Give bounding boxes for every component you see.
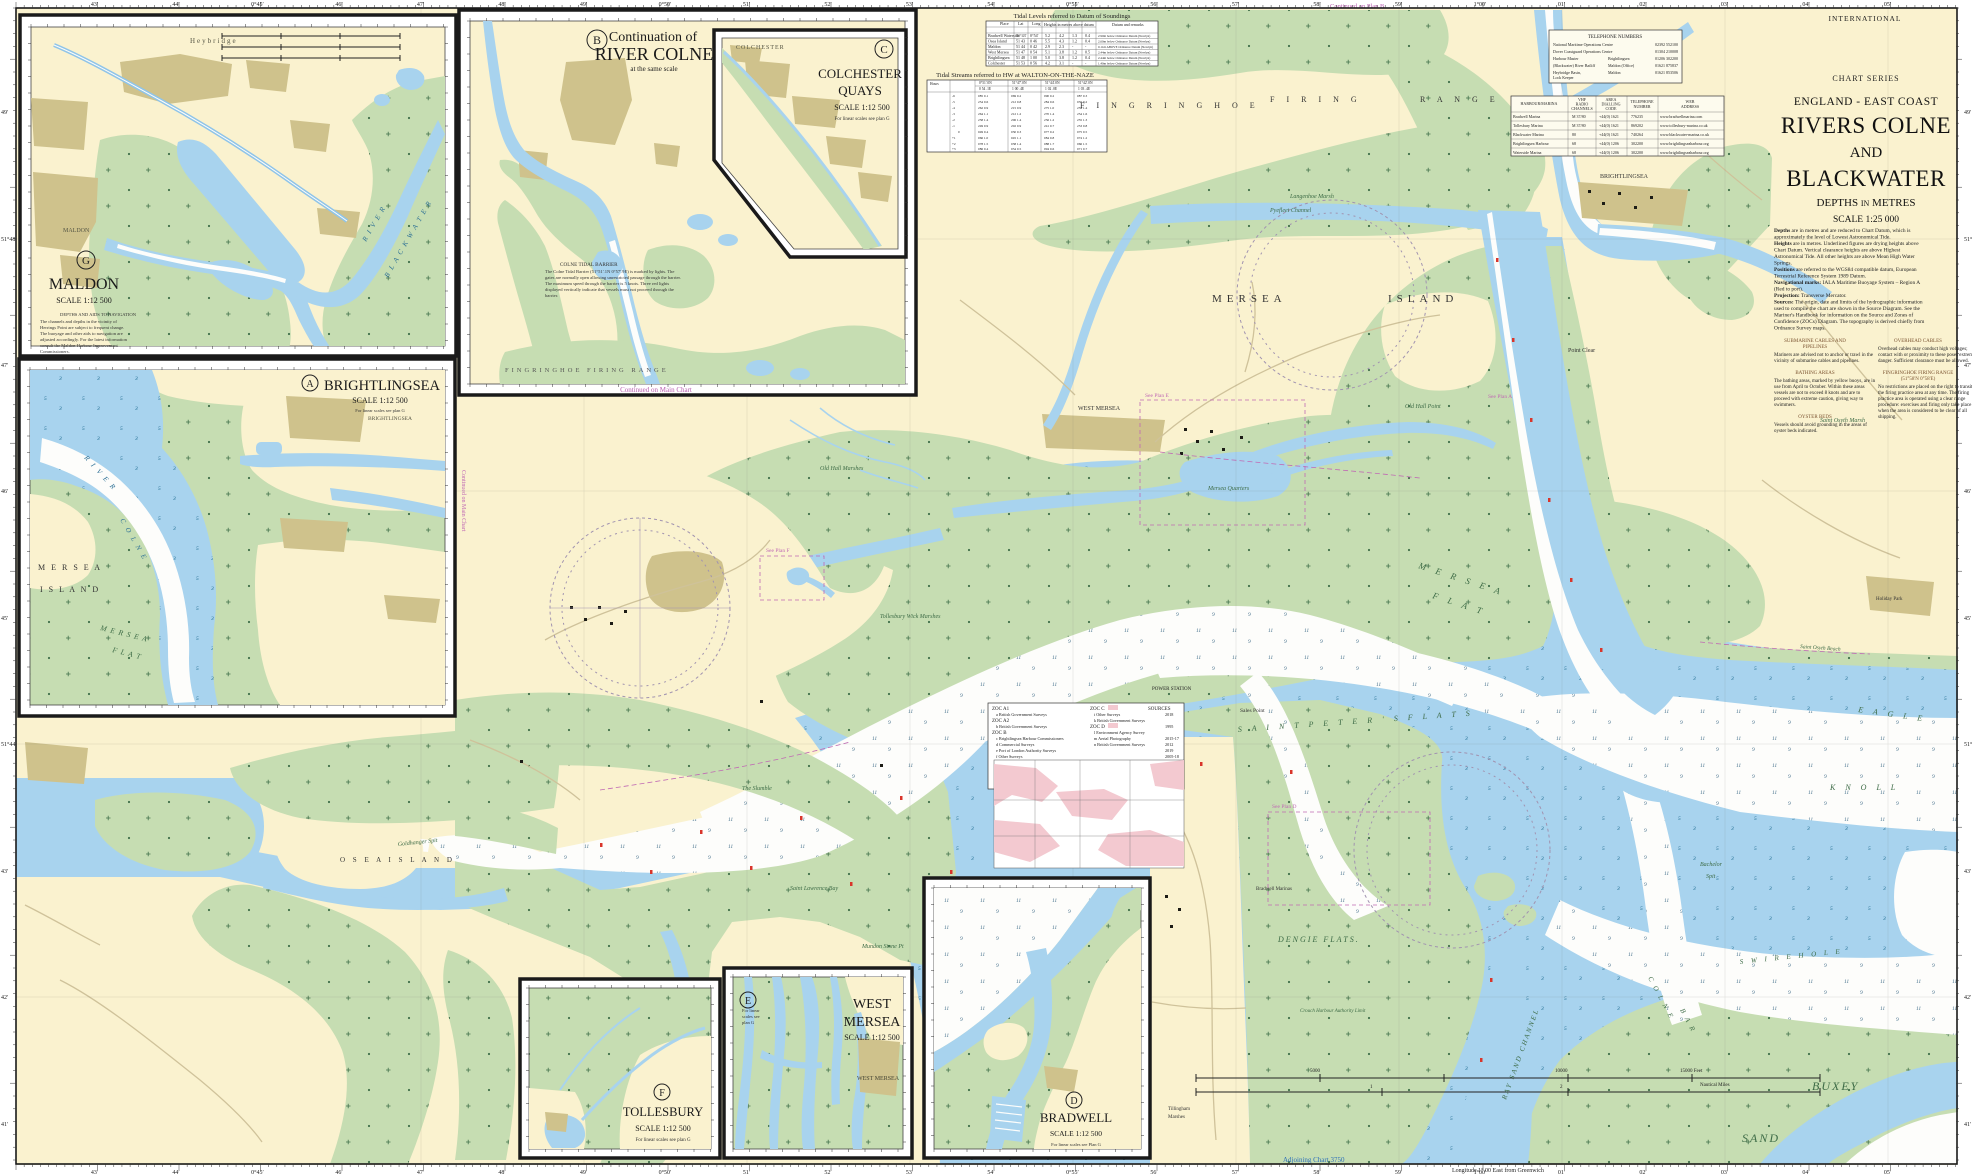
svg-text:212 1.2: 212 1.2 <box>1011 112 1021 116</box>
svg-text:use from April to October. Wit: use from April to October. Within these … <box>1774 385 1865 390</box>
svg-text:2.44m below Ordnance Datum (Ne: 2.44m below Ordnance Datum (Newlyn) <box>1098 56 1150 60</box>
svg-text:+44(0) 1206: +44(0) 1206 <box>1599 150 1619 155</box>
svg-text:270 1.4: 270 1.4 <box>1044 112 1054 116</box>
svg-text:59′: 59′ <box>1395 1170 1403 1175</box>
svg-text:a British Government Surveys: a British Government Surveys <box>996 712 1047 717</box>
svg-text:Longitude 1°.00 East from Gr: Longitude 1°.00 East from Greenwich <box>1452 1167 1544 1174</box>
svg-text:Colchester: Colchester <box>988 61 1006 66</box>
svg-text:51°48′: 51°48′ <box>1 236 17 243</box>
svg-text:53′: 53′ <box>906 2 914 8</box>
svg-text:43′: 43′ <box>1 869 9 875</box>
svg-text:swimmers.: swimmers. <box>1774 403 1796 408</box>
svg-text:0°55′: 0°55′ <box>1066 1169 1079 1175</box>
svg-text:Depths are in metres and are r: Depths are in metres and are reduced to … <box>1774 228 1911 234</box>
svg-text:Chart Datum. Vertical clearanc: Chart Datum. Vertical clearance heights … <box>1774 248 1901 254</box>
svg-text:www.blackwater-marina.co.uk: www.blackwater-marina.co.uk <box>1660 132 1709 137</box>
svg-text:0 56: 0 56 <box>1030 61 1037 66</box>
svg-text:TELEPHONE NUMBERS: TELEPHONE NUMBERS <box>1588 35 1643 40</box>
svg-text:215 0.9: 215 0.9 <box>1011 106 1021 110</box>
svg-text:256 1.2: 256 1.2 <box>1044 118 1054 122</box>
svg-text:INTERNATIONAL: INTERNATIONAL <box>1829 14 1902 23</box>
svg-text:869202: 869202 <box>1631 123 1643 128</box>
svg-text:Navigational marks: IALA Marit: Navigational marks: IALA Maritime Buoyag… <box>1774 280 1920 286</box>
svg-text:3.8: 3.8 <box>1059 50 1064 55</box>
svg-text:Herrings Point are subject to: Herrings Point are subject to frequent c… <box>40 325 124 330</box>
svg-text:WEST: WEST <box>853 997 892 1012</box>
svg-text:+3: +3 <box>952 147 956 151</box>
svg-text:68: 68 <box>1572 150 1576 155</box>
svg-text:vicinity of submarine cables a: vicinity of submarine cables and pipelin… <box>1774 359 1860 364</box>
svg-text:SUBMARINE CABLES AND: SUBMARINE CABLES AND <box>1784 339 1846 344</box>
svg-text:44′: 44′ <box>172 2 180 8</box>
svg-text:Commissioners.: Commissioners. <box>40 349 70 354</box>
svg-text:249 0.9: 249 0.9 <box>978 124 988 128</box>
svg-text:BLACKWATER: BLACKWATER <box>1786 166 1946 191</box>
svg-text:53′: 53′ <box>906 1170 914 1175</box>
svg-text:01′: 01′ <box>1558 2 1566 8</box>
svg-text:Point Clear: Point Clear <box>1568 348 1595 354</box>
svg-text:COLNE TIDAL BARRIER: COLNE TIDAL BARRIER <box>560 262 618 268</box>
svg-text:4.2: 4.2 <box>1045 61 1050 66</box>
svg-text:For linear: For linear <box>742 1008 760 1013</box>
svg-text:54′: 54′ <box>987 2 995 8</box>
svg-text:ENGLAND - EAST COAST: ENGLAND - EAST COAST <box>1794 96 1938 108</box>
svg-text:k British Government Surveys: k British Government Surveys <box>1094 718 1145 723</box>
svg-text:094 0.6: 094 0.6 <box>1044 147 1054 151</box>
svg-text:085 0.1: 085 0.1 <box>978 94 988 98</box>
svg-text:078 1.5: 078 1.5 <box>978 142 988 146</box>
svg-text:when the area is considered to: when the area is considered to be clear … <box>1878 409 1968 414</box>
svg-text:075 0.5: 075 0.5 <box>1077 130 1087 134</box>
svg-text:02′: 02′ <box>1639 1170 1647 1175</box>
svg-text:Harbour Master: Harbour Master <box>1553 56 1579 61</box>
svg-text:51°44′: 51°44′ <box>1964 741 1972 748</box>
svg-text:51 44: 51 44 <box>1016 44 1025 49</box>
svg-text:procedure: exercises and firin: procedure: exercises and firing only tak… <box>1878 403 1972 408</box>
svg-text:E: E <box>745 996 751 1007</box>
svg-text:Brightlingsea Harbour: Brightlingsea Harbour <box>1513 141 1550 146</box>
svg-text:K N O L L: K N O L L <box>1829 783 1899 792</box>
svg-text:01621 875837: 01621 875837 <box>1655 63 1678 68</box>
svg-text:Crouch Harbour Authority Limit: Crouch Harbour Authority Limit <box>1300 1009 1366 1014</box>
svg-text:BATHING AREAS: BATHING AREAS <box>1795 371 1835 376</box>
svg-text:51°48′: 51°48′ <box>1964 236 1972 243</box>
svg-text:066 1.5: 066 1.5 <box>1077 142 1087 146</box>
svg-text:04′: 04′ <box>1802 1170 1810 1175</box>
svg-text:shipping.: shipping. <box>1878 415 1896 420</box>
svg-text:1 02 .0E: 1 02 .0E <box>1045 87 1058 91</box>
svg-text:See Plan D: See Plan D <box>1272 804 1296 810</box>
svg-text:1.2: 1.2 <box>1072 55 1077 60</box>
svg-text:Sources: The origin, date and: Sources: The origin, date and limits of … <box>1774 299 1923 306</box>
svg-text:CODE: CODE <box>1606 106 1617 111</box>
svg-text:n British Government Surveys: n British Government Surveys <box>1094 742 1145 747</box>
svg-text:-4: -4 <box>952 106 955 110</box>
svg-text:58′: 58′ <box>1313 1170 1321 1175</box>
svg-text:2012: 2012 <box>1165 742 1173 747</box>
svg-text:47′: 47′ <box>1 363 9 369</box>
svg-text:0°50′: 0°50′ <box>659 1169 672 1175</box>
svg-text:740264: 740264 <box>1631 132 1643 137</box>
svg-text:Sales Point: Sales Point <box>1240 708 1265 714</box>
svg-text:Dover Coastguard Operations Ce: Dover Coastguard Operations Centre <box>1553 49 1613 54</box>
svg-text:SAND: SAND <box>1742 1131 1780 1145</box>
svg-text:PIPELINES: PIPELINES <box>1803 345 1828 350</box>
svg-text:05′: 05′ <box>1884 2 1892 8</box>
svg-text:FINGRINGHOE FIRING RANGE: FINGRINGHOE FIRING RANGE <box>505 367 669 374</box>
svg-text:2015-17: 2015-17 <box>1165 736 1179 741</box>
svg-text:(51°58'N 0°58'E): (51°58'N 0°58'E) <box>1901 377 1936 382</box>
svg-text:1.3: 1.3 <box>1072 33 1077 38</box>
svg-text:Mersea Quarters: Mersea Quarters <box>1207 486 1250 492</box>
svg-text:F I R I N G: F I R I N G <box>1270 95 1362 104</box>
svg-text:Bradwell Waterside: Bradwell Waterside <box>988 33 1020 38</box>
svg-text:G: G <box>82 255 90 267</box>
svg-text:c Brightlingsea Harbour Comm: c Brightlingsea Harbour Commissioners <box>996 736 1064 741</box>
svg-text:51 53: 51 53 <box>1016 61 1025 66</box>
svg-text:m Aerial Photography: m Aerial Photography <box>1094 736 1132 741</box>
svg-text:51 43: 51 43 <box>1016 39 1025 44</box>
svg-text:264 1.1: 264 1.1 <box>978 112 988 116</box>
svg-text:090 0.2: 090 0.2 <box>1044 94 1054 98</box>
svg-text:Heights in metres above datum: Heights in metres above datum <box>1044 22 1095 27</box>
svg-text:l Environment Agency Survey: l Environment Agency Survey <box>1094 730 1146 735</box>
svg-text:0.11m ABOVE Ordnance Datum (Ne: 0.11m ABOVE Ordnance Datum (Newlyn) <box>1098 45 1153 49</box>
svg-text:0 54: 0 54 <box>1030 50 1037 55</box>
svg-text:52′: 52′ <box>824 1170 832 1175</box>
svg-text:the firing practice area at an: the firing practice area at any time. Th… <box>1878 391 1970 396</box>
svg-text:48′: 48′ <box>498 2 506 8</box>
svg-text:46′: 46′ <box>335 2 343 8</box>
svg-text:A: A <box>306 379 314 390</box>
svg-text:AND: AND <box>1850 145 1883 161</box>
svg-text:e Port of London Authority S: e Port of London Authority Surveys <box>996 748 1057 753</box>
svg-text:The channels and depths in the: The channels and depths in the vicinity … <box>40 319 117 324</box>
svg-text:0.4: 0.4 <box>1085 33 1090 38</box>
svg-text:Brightlingsea: Brightlingsea <box>988 55 1010 60</box>
svg-text:Hours: Hours <box>930 82 939 86</box>
svg-text:RIVERS COLNE: RIVERS COLNE <box>1781 113 1951 138</box>
svg-text:0°45′: 0°45′ <box>251 1169 264 1175</box>
svg-text:The Slumble: The Slumble <box>742 786 772 792</box>
svg-text:56′: 56′ <box>1150 2 1158 8</box>
svg-text:proceed with extreme caution,: proceed with extreme caution, giving way… <box>1774 397 1864 402</box>
svg-text:46′: 46′ <box>1 489 9 495</box>
svg-text:MERSEA: MERSEA <box>1212 293 1287 305</box>
svg-text:Confidence (ZOCs) Diagram. The: Confidence (ZOCs) Diagram. The topograph… <box>1774 318 1925 325</box>
svg-text:49′: 49′ <box>1 110 9 116</box>
svg-text:SCALE 1:12 500: SCALE 1:12 500 <box>1050 1129 1102 1138</box>
svg-text:52′: 52′ <box>824 2 832 8</box>
svg-text:MERSEA: MERSEA <box>844 1015 902 1030</box>
svg-text:SCALE 1:25 000: SCALE 1:25 000 <box>1833 215 1899 225</box>
svg-text:FINGRINGHOE FIRING RANGE: FINGRINGHOE FIRING RANGE <box>1883 371 1954 376</box>
svg-text:+44(0) 1621: +44(0) 1621 <box>1599 114 1619 119</box>
svg-text:BRIGHTLINGSEA: BRIGHTLINGSEA <box>368 416 412 422</box>
svg-text:-5: -5 <box>952 100 955 104</box>
svg-text:SCALE 1:12 500: SCALE 1:12 500 <box>56 296 112 305</box>
svg-text:5.1: 5.1 <box>1045 50 1050 55</box>
svg-text:48′: 48′ <box>498 1170 506 1175</box>
svg-text:For linear scales see plan G: For linear scales see plan G <box>355 408 405 413</box>
svg-text:2.3: 2.3 <box>1059 44 1064 49</box>
svg-text:WEST MERSEA: WEST MERSEA <box>1078 406 1121 412</box>
svg-text:ADDRESS: ADDRESS <box>1681 104 1699 109</box>
svg-text:Waterside Marina: Waterside Marina <box>1513 150 1542 155</box>
svg-text:302200: 302200 <box>1631 150 1643 155</box>
svg-text:Positions are referred to the: Positions are referred to the WGS84 comp… <box>1774 266 1917 273</box>
svg-text:MALDON: MALDON <box>49 276 120 293</box>
svg-text:b British Government Surveys: b British Government Surveys <box>996 724 1047 729</box>
svg-text:I S L A N D: I S L A N D <box>40 585 100 594</box>
svg-text:COLCHESTER: COLCHESTER <box>818 66 902 81</box>
svg-text:Saint Osyth Marsh: Saint Osyth Marsh <box>1820 418 1865 424</box>
svg-text:2.60m below Ordnance Datum (Ne: 2.60m below Ordnance Datum (Newlyn) <box>1098 40 1150 44</box>
svg-text:(Blackwater) River Bailiff: (Blackwater) River Bailiff <box>1553 63 1596 68</box>
svg-text:46′: 46′ <box>335 1170 343 1175</box>
svg-text:www.brightlingseaharbour.org: www.brightlingseaharbour.org <box>1660 150 1709 155</box>
svg-text:Tillingham: Tillingham <box>1168 1107 1190 1112</box>
svg-text:ISLAND: ISLAND <box>1388 293 1458 305</box>
svg-text:0°50′: 0°50′ <box>659 1 672 8</box>
svg-text:-6: -6 <box>952 94 955 98</box>
svg-text:44′: 44′ <box>172 1170 180 1175</box>
svg-text:Overhead cables may conduct hi: Overhead cables may conduct high voltage… <box>1878 347 1968 352</box>
svg-text:Place: Place <box>1000 21 1009 26</box>
svg-text:43′: 43′ <box>91 2 99 8</box>
svg-text:Tidal Streams referred to HW a: Tidal Streams referred to HW at WALTON-O… <box>936 72 1094 79</box>
svg-text:51 47: 51 47 <box>1016 50 1025 55</box>
svg-text:68: 68 <box>1572 141 1576 146</box>
svg-text:038 1.4: 038 1.4 <box>1011 142 1021 146</box>
svg-text:206 1.4: 206 1.4 <box>1011 118 1021 122</box>
svg-text:275 1.0: 275 1.0 <box>1044 106 1054 110</box>
svg-text:Old Hall Marshes: Old Hall Marshes <box>820 466 864 472</box>
svg-text:d Commercial Surveys: d Commercial Surveys <box>996 742 1035 747</box>
svg-text:2005-18: 2005-18 <box>1165 754 1179 759</box>
svg-text:vessels are not to exceed 8 kn: vessels are not to exceed 8 knots and ar… <box>1774 391 1861 396</box>
svg-text:1.2: 1.2 <box>1072 50 1077 55</box>
svg-text:5.0: 5.0 <box>1045 55 1050 60</box>
svg-text:displayed vertically indicate: displayed vertically indicate that vesse… <box>545 287 674 292</box>
svg-text:The maximum speed through the: The maximum speed through the barrier is… <box>545 281 669 286</box>
svg-text:262 0.9: 262 0.9 <box>978 106 988 110</box>
svg-text:51°42'.0N: 51°42'.0N <box>1078 81 1093 85</box>
svg-text:Spit: Spit <box>1706 874 1716 880</box>
svg-text:D: D <box>1070 1096 1077 1107</box>
svg-text:5000: 5000 <box>1310 1069 1321 1074</box>
svg-text:45′: 45′ <box>1964 616 1972 622</box>
svg-text:4.2: 4.2 <box>1059 33 1064 38</box>
svg-text:01′: 01′ <box>1558 1170 1566 1175</box>
svg-text:used to compile the chart are: used to compile the chart are shown in t… <box>1774 306 1921 312</box>
svg-text:f Other Surveys: f Other Surveys <box>996 754 1023 759</box>
svg-text:CHART SERIES: CHART SERIES <box>1832 74 1899 83</box>
svg-text:54′: 54′ <box>987 1170 995 1175</box>
svg-text:Heights are in metres. Underl: Heights are in metres. Underlined figure… <box>1774 240 1919 247</box>
svg-text:088 1.7: 088 1.7 <box>1044 142 1054 146</box>
svg-text:074 1.2: 074 1.2 <box>1077 136 1087 140</box>
svg-text:BRIGHTLINGSEA: BRIGHTLINGSEA <box>324 378 441 394</box>
svg-text:51°47'.0N: 51°47'.0N <box>1012 81 1027 85</box>
svg-text:The bathing areas, marked by y: The bathing areas, marked by yellow buoy… <box>1774 379 1876 384</box>
svg-text:1.40m below Ordnance Datum (Ne: 1.40m below Ordnance Datum (Newlyn) <box>1098 62 1150 66</box>
svg-text:212 0.8: 212 0.8 <box>1011 100 1021 104</box>
svg-text:Continued on Plan B: Continued on Plan B <box>1330 3 1385 10</box>
svg-text:47′: 47′ <box>417 2 425 8</box>
svg-text:034 0.5: 034 0.5 <box>1011 147 1021 151</box>
svg-text:For linear scales see Plan G: For linear scales see Plan G <box>1051 1142 1102 1147</box>
svg-text:Maldon: Maldon <box>988 44 1000 49</box>
svg-text:-1: -1 <box>952 124 955 128</box>
svg-text:TOLLESBURY: TOLLESBURY <box>623 1105 703 1119</box>
svg-text:DEPTHS IN METRES: DEPTHS IN METRES <box>1817 197 1916 209</box>
svg-text:Bradwell Marina: Bradwell Marina <box>1513 114 1540 119</box>
svg-text:01621 853506: 01621 853506 <box>1655 70 1678 75</box>
svg-text:071 0.7: 071 0.7 <box>1077 147 1087 151</box>
svg-text:59′: 59′ <box>1395 2 1403 8</box>
svg-text:danger. Sufficient clearance m: danger. Sufficient clearance must be all… <box>1878 359 1969 364</box>
svg-text:Projection: Transverse Mercato: Projection: Transverse Mercator. <box>1774 293 1847 299</box>
svg-text:254 0.6: 254 0.6 <box>978 100 988 104</box>
svg-text:scales see: scales see <box>742 1014 760 1019</box>
svg-text:SCALE 1:12 500: SCALE 1:12 500 <box>844 1033 900 1042</box>
svg-text:0°54': 0°54' <box>1030 33 1039 38</box>
svg-text:45′: 45′ <box>1 616 9 622</box>
svg-text:43′: 43′ <box>91 1170 99 1175</box>
svg-text:Brightlingsea: Brightlingsea <box>1608 56 1630 61</box>
svg-text:SCALE 1:12 500: SCALE 1:12 500 <box>352 396 408 405</box>
svg-text:51°43': 51°43' <box>1016 33 1027 38</box>
svg-text:202 0.9: 202 0.9 <box>1011 124 1021 128</box>
svg-text:Mariner's Handbook for informa: Mariner's Handbook for information on th… <box>1774 312 1913 319</box>
svg-text:F: F <box>659 1088 665 1099</box>
svg-text:For linear scales see plan G: For linear scales see plan G <box>834 117 890 122</box>
svg-text:QUAYS: QUAYS <box>838 83 882 98</box>
svg-text:Saint Lawrence Bay: Saint Lawrence Bay <box>790 886 838 892</box>
svg-text:05′: 05′ <box>1884 1170 1892 1175</box>
svg-text:302200: 302200 <box>1631 141 1643 146</box>
svg-text:284 0.6: 284 0.6 <box>1044 100 1054 104</box>
svg-text:253 0.8: 253 0.8 <box>1077 124 1087 128</box>
svg-text:Continuation of: Continuation of <box>609 30 698 45</box>
svg-text:+44(0) 1621: +44(0) 1621 <box>1599 132 1619 137</box>
svg-text:2018: 2018 <box>1165 712 1173 717</box>
svg-text:Mariners are advised not to an: Mariners are advised not to anchor or tr… <box>1774 353 1874 358</box>
svg-text:0 42: 0 42 <box>1030 44 1037 49</box>
svg-text:42′: 42′ <box>1964 995 1972 1001</box>
svg-text:DENGIE FLATS.: DENGIE FLATS. <box>1277 935 1360 944</box>
svg-text:51′: 51′ <box>743 2 751 8</box>
svg-text:5.5: 5.5 <box>1045 39 1050 44</box>
svg-text:www.tollesbury-marina.co.uk: www.tollesbury-marina.co.uk <box>1660 123 1708 128</box>
svg-text:10000: 10000 <box>1555 1069 1568 1074</box>
svg-text:Adjoining Chart 3750: Adjoining Chart 3750 <box>1283 1156 1345 1164</box>
svg-text:049 0.4: 049 0.4 <box>978 130 988 134</box>
svg-text:O S E A I S L A N D: O S E A I S L A N D <box>340 856 455 864</box>
svg-text:1 00 .4E: 1 00 .4E <box>1012 87 1025 91</box>
svg-text:254 1.6: 254 1.6 <box>1077 112 1087 116</box>
svg-text:Datum and remarks: Datum and remarks <box>1112 22 1144 27</box>
svg-text:51°44'.0N: 51°44'.0N <box>1045 81 1060 85</box>
svg-text:01304 210008: 01304 210008 <box>1655 49 1678 54</box>
svg-text:1 00: 1 00 <box>1030 55 1037 60</box>
svg-text:POWER STATION: POWER STATION <box>1152 687 1192 692</box>
svg-text:Nautical Miles: Nautical Miles <box>1700 1083 1730 1088</box>
svg-text:www.brightlingseaharbour.org: www.brightlingseaharbour.org <box>1660 141 1709 146</box>
svg-text:Continued on Main Chart: Continued on Main Chart <box>460 470 466 532</box>
svg-text:approximately the level of Low: approximately the level of Lowest Astron… <box>1774 234 1891 241</box>
svg-text:BRIGHTLINGSEA: BRIGHTLINGSEA <box>1600 174 1649 180</box>
svg-text:OVERHEAD CABLES: OVERHEAD CABLES <box>1894 339 1942 344</box>
svg-text:030 0.3: 030 0.3 <box>1011 130 1021 134</box>
svg-text:Langenhoe Marsh: Langenhoe Marsh <box>1289 194 1334 200</box>
svg-text:-2: -2 <box>952 118 955 122</box>
svg-text:Terrestrial Reference System 1: Terrestrial Reference System 1989 Datum. <box>1774 273 1866 280</box>
svg-text:See Plan A: See Plan A <box>1488 394 1512 400</box>
svg-text:Tollesbury Marina: Tollesbury Marina <box>1513 123 1543 128</box>
svg-text:0 46: 0 46 <box>1030 39 1037 44</box>
svg-text:i Other Surveys: i Other Surveys <box>1094 712 1121 717</box>
svg-text:47′: 47′ <box>417 1170 425 1175</box>
svg-text:084 0.8: 084 0.8 <box>1044 136 1054 140</box>
svg-text:Ordnance Survey maps.: Ordnance Survey maps. <box>1774 326 1826 332</box>
svg-text:0°45′: 0°45′ <box>251 1 264 8</box>
svg-text:0: 0 <box>958 130 960 134</box>
svg-text:49′: 49′ <box>580 1170 588 1175</box>
svg-text:CHANNELS: CHANNELS <box>1571 106 1592 111</box>
svg-text:BRADWELL: BRADWELL <box>1040 1110 1112 1125</box>
svg-text:1995: 1995 <box>1165 724 1173 729</box>
svg-text:gates are normally open allowi: gates are normally open allowing unrestr… <box>545 275 681 280</box>
svg-text:adjusted accordingly. For the: adjusted accordingly. For the latest inf… <box>40 337 128 342</box>
svg-text:R A N G E: R A N G E <box>1420 95 1500 104</box>
svg-text:Blackwater Marina: Blackwater Marina <box>1513 132 1544 137</box>
svg-text:069 0.2: 069 0.2 <box>1011 94 1021 98</box>
svg-text:COLCHESTER: COLCHESTER <box>736 45 785 51</box>
svg-text:Holiday Park: Holiday Park <box>1876 597 1903 602</box>
svg-text:practice area is operated usin: practice area is operated using a clear … <box>1878 397 1966 402</box>
svg-text:0.4: 0.4 <box>1085 39 1090 44</box>
svg-text:National Maritime Operations C: National Maritime Operations Centre <box>1553 42 1613 47</box>
svg-text:51′: 51′ <box>743 1170 751 1175</box>
svg-text:0°55′: 0°55′ <box>1066 1 1079 8</box>
svg-text:258 1.4: 258 1.4 <box>978 118 988 122</box>
svg-text:For linear scales see plan G: For linear scales see plan G <box>635 1138 691 1143</box>
svg-text:barrier.: barrier. <box>545 293 558 298</box>
svg-text:consult the Maldon Harbour Imp: consult the Maldon Harbour Improvement <box>40 343 119 348</box>
svg-text:51 48: 51 48 <box>1016 55 1025 60</box>
svg-text:0°51'.0N: 0°51'.0N <box>979 81 992 85</box>
svg-text:plan G: plan G <box>742 1020 755 1025</box>
svg-text:086 0.4: 086 0.4 <box>978 147 988 151</box>
svg-text:(Red to port).: (Red to port). <box>1774 286 1803 293</box>
svg-text:Maldon: Maldon <box>1608 70 1620 75</box>
svg-text:M 37/80: M 37/80 <box>1572 123 1586 128</box>
svg-text:+44(0) 1206: +44(0) 1206 <box>1599 141 1619 146</box>
svg-text:The Colne Tidal Barrier (51°51: The Colne Tidal Barrier (51°51'.1N 0°57'… <box>545 269 674 274</box>
svg-text:Bradwell Marinas: Bradwell Marinas <box>1256 887 1292 892</box>
svg-text:www.bradwellmarina.com: www.bradwellmarina.com <box>1660 114 1703 119</box>
svg-text:045 1.1: 045 1.1 <box>1011 136 1021 140</box>
svg-text:Marshes: Marshes <box>1168 1115 1185 1120</box>
svg-text:02392 552100: 02392 552100 <box>1655 42 1678 47</box>
svg-text:Mundon Stone Pt: Mundon Stone Pt <box>861 944 904 950</box>
svg-text:57′: 57′ <box>1232 1170 1240 1175</box>
svg-text:077 0.2: 077 0.2 <box>1044 130 1054 134</box>
svg-text:58′: 58′ <box>1313 2 1321 8</box>
svg-text:49′: 49′ <box>580 2 588 8</box>
